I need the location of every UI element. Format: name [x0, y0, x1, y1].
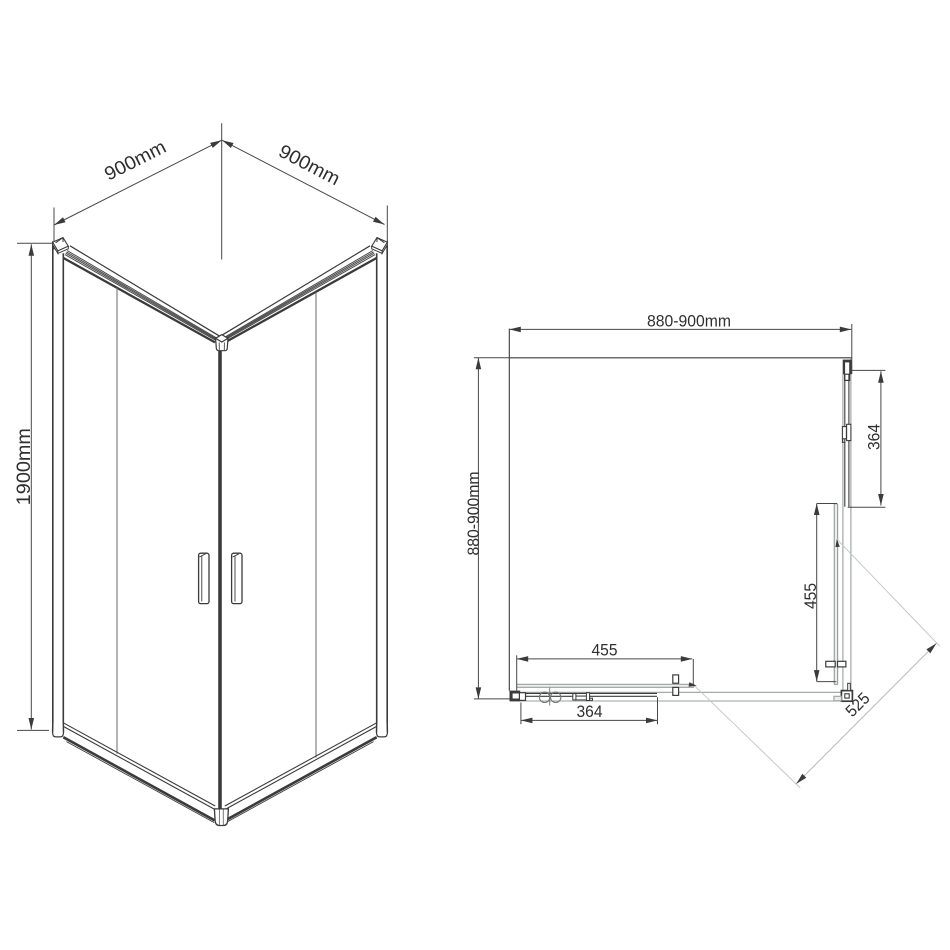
svg-text:455: 455: [802, 583, 820, 609]
svg-text:880-900mm: 880-900mm: [464, 472, 483, 556]
svg-text:880-900mm: 880-900mm: [647, 311, 731, 330]
svg-text:1900mm: 1900mm: [14, 428, 35, 505]
svg-text:364: 364: [865, 424, 883, 450]
svg-text:455: 455: [592, 642, 618, 660]
svg-text:364: 364: [577, 703, 603, 721]
